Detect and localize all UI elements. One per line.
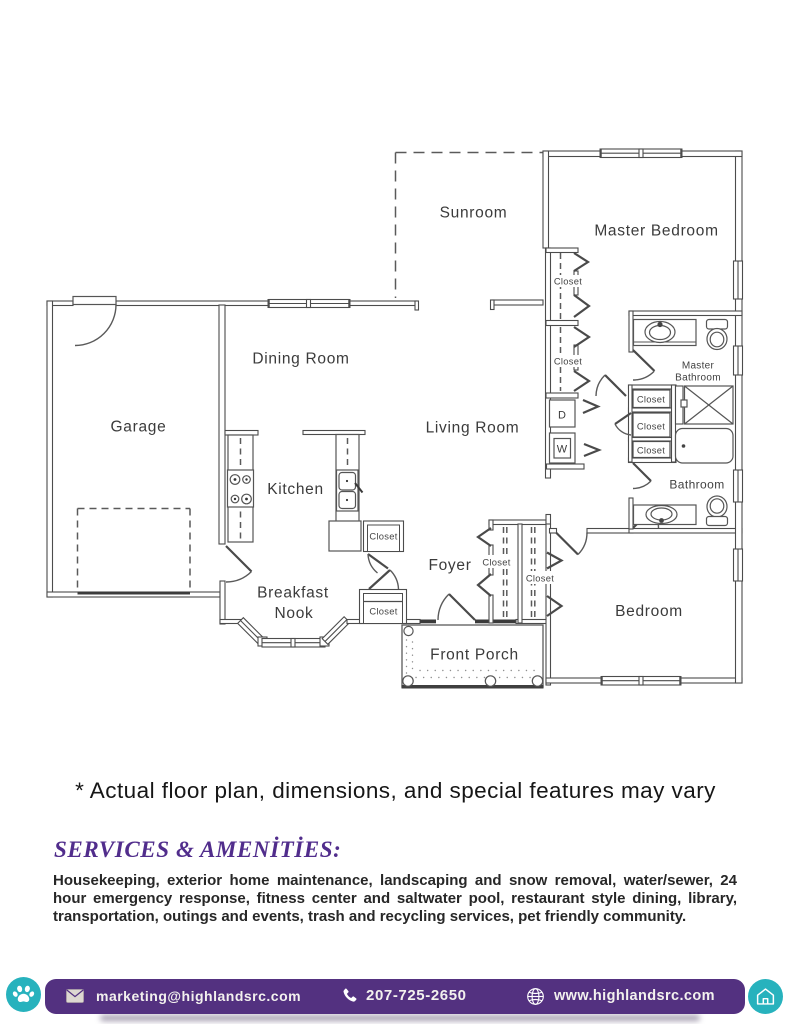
svg-text:Closet: Closet [369,606,397,617]
svg-text:Closet: Closet [369,531,397,542]
svg-text:Front Porch: Front Porch [430,647,519,664]
svg-text:W: W [557,444,568,456]
svg-text:Master Bedroom: Master Bedroom [594,223,718,240]
svg-text:Bathroom: Bathroom [669,478,724,492]
svg-text:Closet: Closet [554,276,582,287]
svg-text:Breakfast: Breakfast [257,585,329,602]
svg-text:Bedroom: Bedroom [615,603,683,620]
svg-text:Living Room: Living Room [426,420,520,437]
svg-text:Master: Master [682,361,715,372]
svg-text:Closet: Closet [637,421,665,432]
svg-text:Nook: Nook [275,605,314,622]
svg-text:Closet: Closet [482,557,510,568]
svg-text:Bathroom: Bathroom [675,373,721,384]
svg-text:Dining Room: Dining Room [252,351,349,368]
svg-text:Sunroom: Sunroom [440,205,508,222]
svg-text:Closet: Closet [637,445,665,456]
svg-text:Foyer: Foyer [428,557,471,574]
svg-text:D: D [558,410,566,422]
svg-text:Closet: Closet [637,394,665,405]
svg-text:Kitchen: Kitchen [267,481,324,498]
svg-text:Garage: Garage [111,419,167,436]
svg-text:Closet: Closet [526,573,554,584]
svg-text:Closet: Closet [554,356,582,367]
